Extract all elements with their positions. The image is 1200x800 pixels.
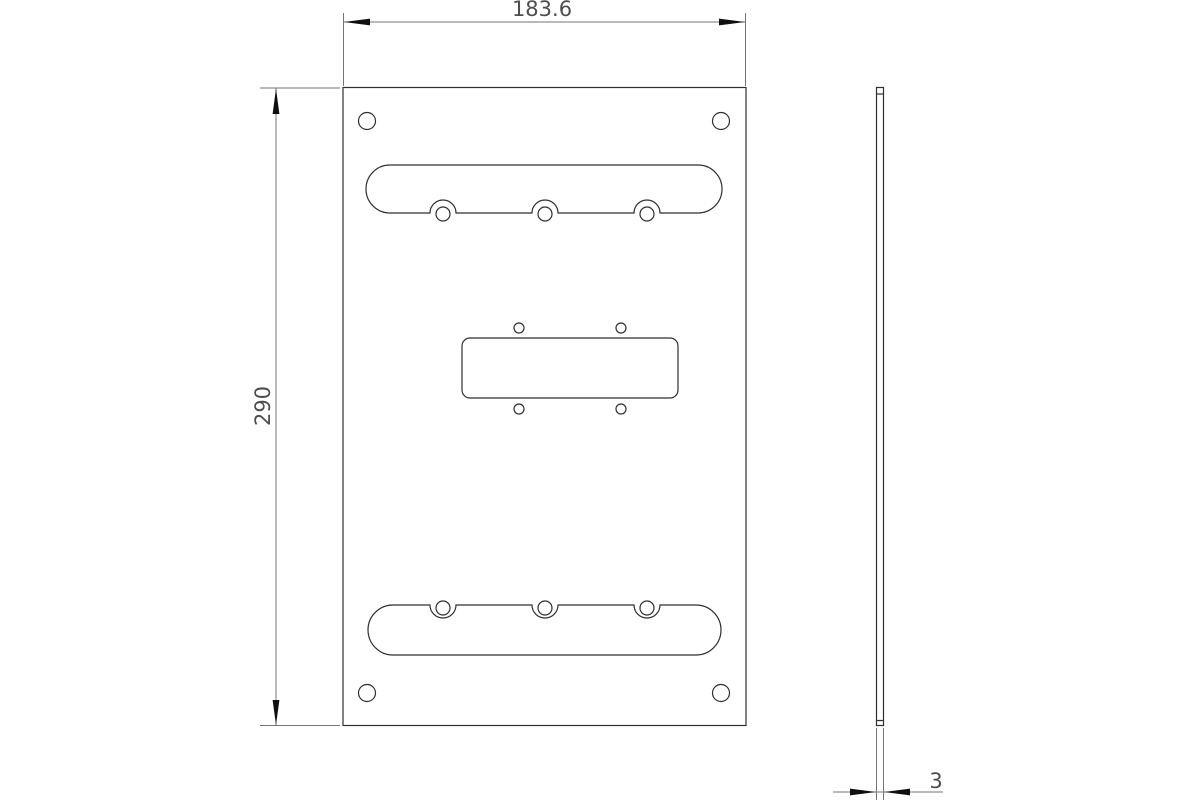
width-dimension: 183.6 xyxy=(344,0,746,86)
thickness-dimension-label: 3 xyxy=(929,769,942,793)
thickness-arrow-left-icon xyxy=(850,789,876,796)
mounting-hole-top-left xyxy=(359,113,376,130)
width-arrow-right-icon xyxy=(719,19,745,26)
height-arrow-bottom-icon xyxy=(273,700,280,725)
height-dimension: 290 xyxy=(251,88,340,726)
height-arrow-top-icon xyxy=(273,89,280,115)
front-view xyxy=(343,88,746,726)
technical-drawing-svg: 183.6 290 3 xyxy=(0,0,1200,800)
thickness-arrow-right-icon xyxy=(884,789,910,796)
side-profile-outline xyxy=(877,88,884,726)
mounting-hole-top-right xyxy=(713,113,730,130)
width-arrow-left-icon xyxy=(344,19,370,26)
mounting-hole-bottom-left xyxy=(359,685,376,702)
mounting-hole-bottom-right xyxy=(713,685,730,702)
side-view xyxy=(877,88,884,726)
plate-outline xyxy=(343,88,746,726)
drawing-canvas: 183.6 290 3 xyxy=(0,0,1200,800)
width-dimension-label: 183.6 xyxy=(512,0,572,21)
thickness-dimension: 3 xyxy=(833,728,943,800)
height-dimension-label: 290 xyxy=(251,386,275,426)
